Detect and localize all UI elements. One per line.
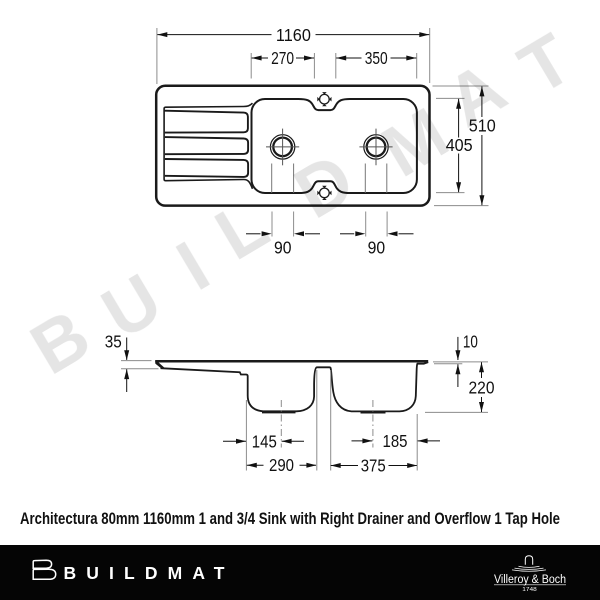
svg-text:375: 375	[361, 456, 386, 476]
svg-text:Architectura 80mm 1160mm 1 and: Architectura 80mm 1160mm 1 and 3/4 Sink …	[20, 510, 560, 528]
svg-text:BUILDMAT: BUILDMAT	[64, 563, 225, 583]
svg-text:270: 270	[271, 48, 294, 68]
svg-text:350: 350	[365, 48, 388, 68]
svg-text:1160: 1160	[276, 25, 311, 45]
svg-text:185: 185	[383, 431, 408, 451]
svg-text:290: 290	[269, 455, 294, 475]
svg-text:145: 145	[252, 431, 277, 451]
svg-text:220: 220	[469, 377, 495, 397]
svg-text:1748: 1748	[522, 587, 537, 593]
svg-text:90: 90	[368, 238, 386, 258]
svg-text:Villeroy & Boch: Villeroy & Boch	[494, 574, 566, 586]
svg-text:10: 10	[463, 331, 478, 351]
